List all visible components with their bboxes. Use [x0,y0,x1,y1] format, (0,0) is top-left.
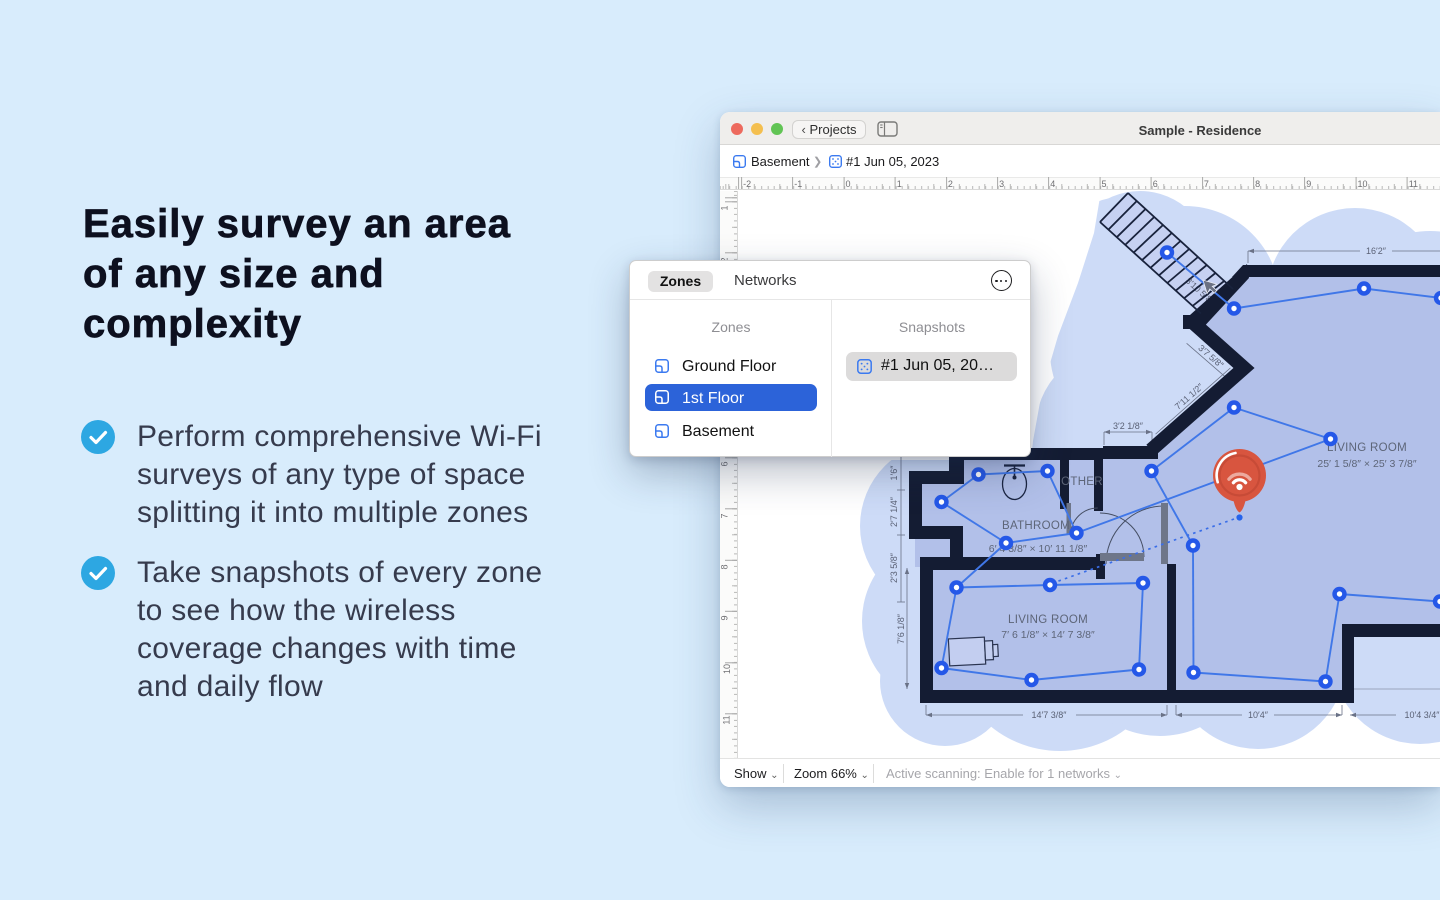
svg-text:7′6 1/8″: 7′6 1/8″ [896,613,906,644]
svg-text:16′2″: 16′2″ [1366,246,1387,256]
svg-text:2′3 5/8″: 2′3 5/8″ [889,552,899,583]
svg-text:2′7 1/4″: 2′7 1/4″ [889,496,899,527]
svg-text:7′ 6 1/8″ × 14′ 7 3/8″: 7′ 6 1/8″ × 14′ 7 3/8″ [1001,629,1095,641]
svg-text:BATHROOM: BATHROOM [1002,520,1070,532]
svg-text:OTHER: OTHER [1061,476,1103,488]
svg-text:10′4″: 10′4″ [1248,710,1269,720]
svg-text:LIVING ROOM: LIVING ROOM [1327,442,1407,454]
svg-text:25′ 1 5/8″ × 25′ 3 7/8″: 25′ 1 5/8″ × 25′ 3 7/8″ [1317,458,1417,470]
svg-text:14′7 3/8″: 14′7 3/8″ [1032,710,1068,720]
svg-text:3′2 1/8″: 3′2 1/8″ [1113,421,1144,431]
svg-text:10′4 3/4″: 10′4 3/4″ [1405,710,1440,720]
svg-text:1′6″: 1′6″ [889,465,899,481]
svg-text:LIVING ROOM: LIVING ROOM [1008,614,1088,626]
